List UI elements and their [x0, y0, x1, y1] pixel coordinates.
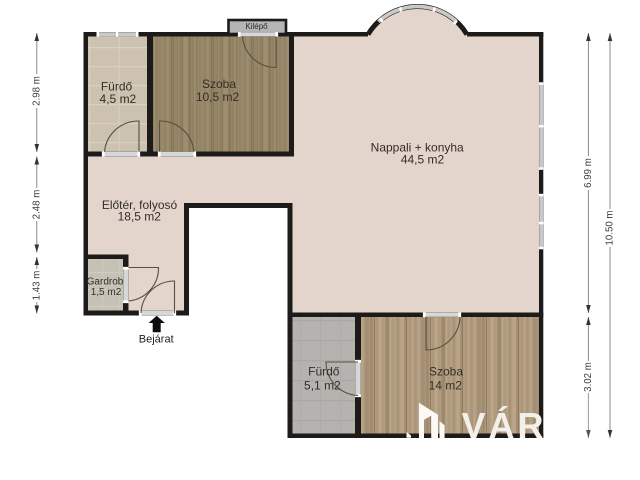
svg-text:2.98 m: 2.98 m	[31, 76, 42, 106]
svg-text:VÁR: VÁR	[461, 405, 546, 446]
svg-text:1,5 m2: 1,5 m2	[91, 287, 122, 298]
svg-text:5,1 m2: 5,1 m2	[304, 379, 341, 393]
svg-text:10.50 m: 10.50 m	[605, 210, 616, 245]
svg-text:Gardrob: Gardrob	[87, 277, 124, 288]
svg-text:3.02 m: 3.02 m	[583, 362, 594, 392]
svg-text:44,5 m2: 44,5 m2	[401, 152, 445, 166]
svg-text:6.99 m: 6.99 m	[583, 158, 594, 188]
svg-text:4,5 m2: 4,5 m2	[100, 92, 137, 106]
svg-text:10,5 m2: 10,5 m2	[196, 90, 240, 104]
svg-text:Fürdő: Fürdő	[308, 365, 340, 379]
svg-text:Kilépő: Kilépő	[245, 22, 268, 31]
svg-text:Bejárat: Bejárat	[139, 334, 174, 346]
svg-text:Szoba: Szoba	[202, 77, 236, 91]
svg-text:14 m2: 14 m2	[429, 379, 463, 393]
svg-text:1.43 m: 1.43 m	[31, 271, 42, 301]
svg-text:Szoba: Szoba	[429, 365, 463, 379]
svg-text:2.48 m: 2.48 m	[31, 190, 42, 220]
svg-text:18,5 m2: 18,5 m2	[118, 210, 162, 224]
